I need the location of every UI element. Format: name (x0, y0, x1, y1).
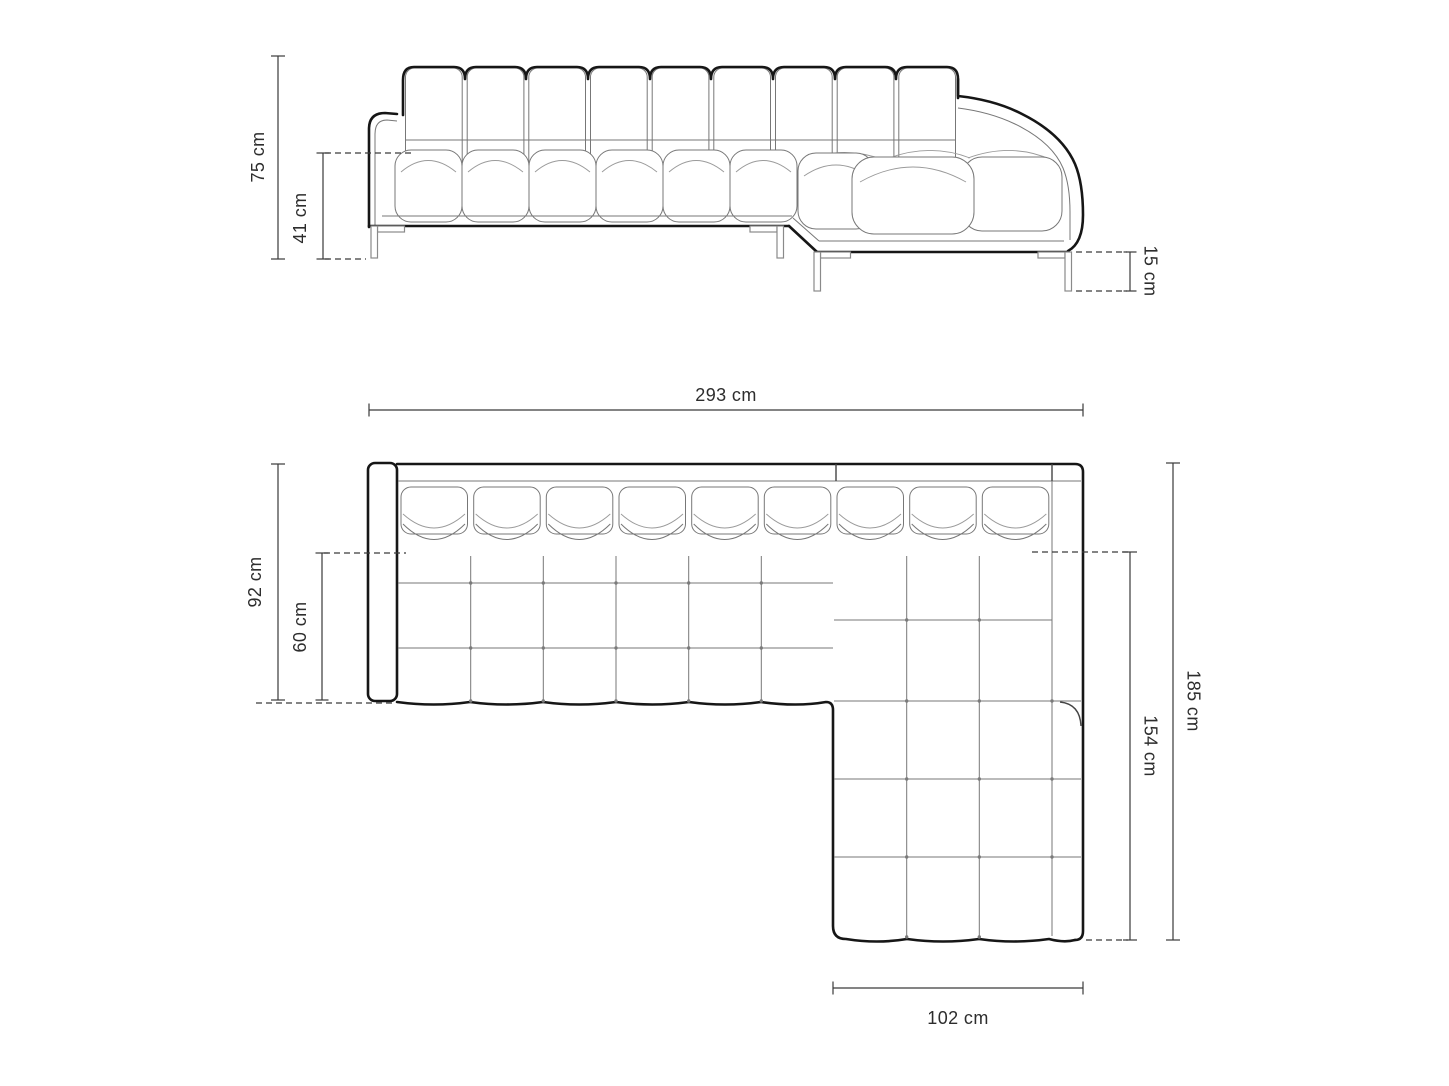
sofa-dimension-diagram: 75 cm 41 cm 15 cm (0, 0, 1449, 1086)
sofa-legs (371, 226, 1072, 291)
leg-bracket (1038, 252, 1065, 258)
leg-chaise-left (814, 252, 821, 291)
dimension-label-chaise-width: 102 cm (927, 1008, 988, 1028)
dimension-total-depth: 92 cm (245, 464, 285, 700)
leg-chaise-right (1065, 252, 1072, 291)
dimension-total-length: 185 cm (1166, 463, 1203, 940)
top-plan-view: 293 cm 92 cm 60 cm 185 cm (245, 385, 1204, 1028)
dimension-label-seat-height: 41 cm (290, 192, 310, 243)
leg-back-middle (777, 226, 784, 258)
leg-bracket (821, 252, 851, 258)
leg-bracket (750, 226, 777, 232)
plan-seat-grid (398, 481, 1081, 939)
dimension-label-total-depth: 92 cm (245, 556, 265, 607)
dimension-leg-height: 15 cm (1076, 245, 1160, 296)
dimension-label-total-height: 75 cm (248, 131, 268, 182)
dimension-chaise-length: 154 cm (1032, 552, 1160, 940)
dimension-chaise-width: 102 cm (833, 982, 1083, 1029)
dimension-label-total-length: 185 cm (1183, 670, 1203, 731)
dimension-label-total-width: 293 cm (695, 385, 756, 405)
dimension-label-chaise-length: 154 cm (1140, 715, 1160, 776)
front-elevation-view: 75 cm 41 cm 15 cm (248, 56, 1161, 297)
dimension-total-width: 293 cm (369, 385, 1083, 417)
plan-armrest-left (368, 463, 397, 701)
dimension-total-height: 75 cm (248, 56, 285, 259)
dimension-label-seat-depth: 60 cm (290, 601, 310, 652)
chaise-cushions (798, 150, 1062, 234)
plan-outline (368, 463, 1083, 942)
dimension-label-leg-height: 15 cm (1140, 245, 1160, 296)
leg-front-left (371, 226, 378, 258)
sofa-armrest-left (369, 113, 397, 227)
plan-back-cushions (401, 487, 1049, 540)
leg-bracket (378, 226, 405, 232)
